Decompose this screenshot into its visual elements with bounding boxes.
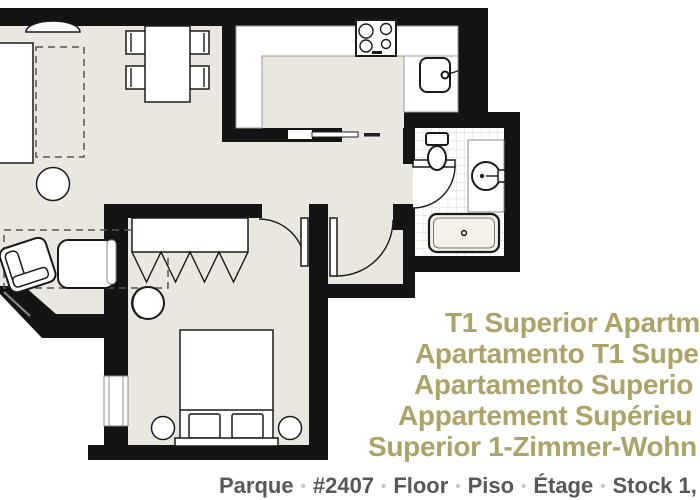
- dining-chair: [126, 66, 146, 89]
- wall-bath-top: [404, 112, 520, 128]
- dining-chair: [189, 66, 209, 89]
- footer-item: Piso: [468, 473, 514, 498]
- hall-door: [330, 218, 337, 276]
- wall-bedroom-bottom: [88, 445, 328, 460]
- footer-item: Stock 1,: [613, 473, 697, 498]
- pillow: [232, 414, 263, 438]
- dining-chair: [189, 31, 209, 54]
- plan-title-line: T1 Superior Apartm: [445, 309, 700, 337]
- wall-bath-right: [504, 112, 520, 272]
- wall-corridor-bottom: [328, 284, 415, 298]
- footer-separator: •: [381, 478, 386, 495]
- headboard: [175, 438, 278, 446]
- coffee-table: [58, 240, 115, 288]
- dining-table: [145, 26, 190, 102]
- bedroom-window: [104, 376, 128, 426]
- nightstand: [152, 417, 175, 440]
- footer-separator: •: [521, 478, 526, 495]
- floorplan-page: { "title": { "lines": [ "T1 Superior Apa…: [0, 0, 700, 500]
- radiator: [107, 240, 116, 284]
- footer-caption: Parque•#2407•Floor•Piso•Étage•Stock 1,: [219, 474, 697, 499]
- footer-separator: •: [301, 478, 306, 495]
- footer-item: Étage: [533, 473, 593, 498]
- plan-title-line: Superior 1-Zimmer-Wohn: [368, 433, 697, 461]
- footer-item: Parque: [219, 473, 294, 498]
- plan-title-line: Apartamento T1 Supe: [415, 340, 699, 368]
- pillow: [189, 414, 220, 438]
- footer-separator: •: [455, 478, 460, 495]
- footer-item: #2407: [313, 473, 374, 498]
- wardrobe: [132, 218, 248, 252]
- wall-bedroom-right: [309, 204, 328, 460]
- stool: [132, 287, 164, 319]
- dining-chair: [126, 31, 146, 54]
- footer-separator: •: [600, 478, 605, 495]
- plan-title-line: Apartamento Superio: [414, 371, 693, 399]
- bed: [175, 330, 278, 446]
- footer-item: Floor: [393, 473, 448, 498]
- bathtub: [429, 214, 499, 252]
- plan-title-line: Appartement Supérieu: [398, 402, 692, 430]
- wall-corridor-stub: [393, 204, 415, 230]
- wall-kitchen-living: [222, 8, 236, 142]
- side-table: [37, 168, 70, 201]
- wall-kitchen-right: [458, 8, 488, 114]
- wall-bath-bottom: [404, 256, 520, 272]
- nightstand: [279, 417, 302, 440]
- bedroom-door: [301, 218, 308, 266]
- sofa: [0, 43, 33, 163]
- wall-top: [0, 8, 488, 26]
- wall-bath-left-upper: [403, 128, 415, 164]
- toilet: [426, 133, 448, 170]
- stove: [356, 20, 396, 56]
- washbasin: [468, 140, 505, 212]
